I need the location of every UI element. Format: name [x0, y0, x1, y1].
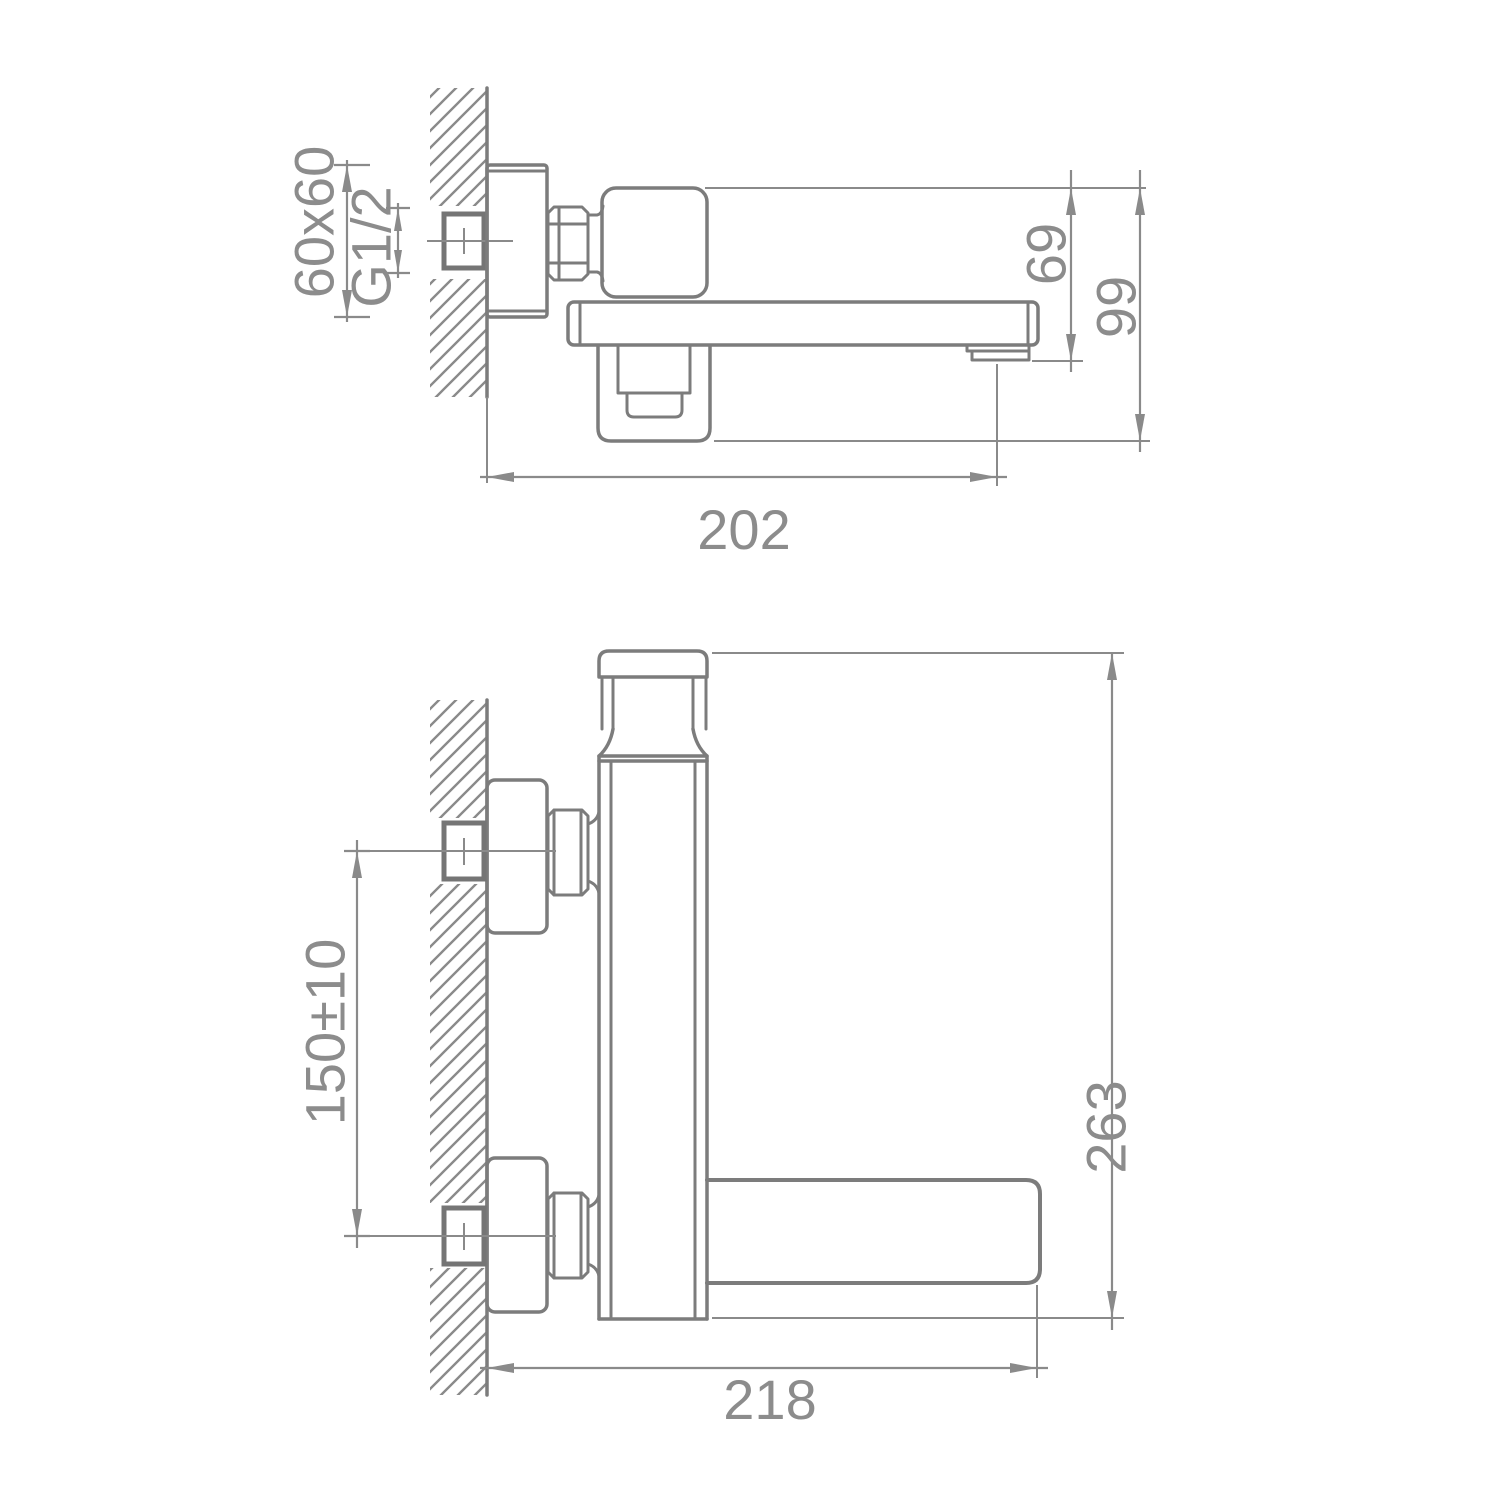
arrow-up-icon — [1066, 188, 1076, 215]
arrow-down-icon — [1135, 414, 1145, 441]
housing-step-1 — [618, 346, 690, 393]
front-view: 150±10 263 218 — [294, 651, 1138, 1431]
housing-step-2 — [627, 393, 682, 417]
arrow-left-icon — [487, 472, 514, 482]
dim-label-overall-depth: 99 — [1085, 276, 1148, 338]
aerator — [967, 345, 1029, 360]
arrow-right-icon — [1010, 1363, 1037, 1373]
dim-label-flange-size: 60x60 — [283, 146, 346, 299]
arrow-right-icon — [970, 472, 997, 482]
dim-overall-length: 218 — [480, 1285, 1048, 1431]
arrow-down-icon — [1066, 334, 1076, 361]
arrow-up-icon — [1135, 188, 1145, 215]
wall-hatch-1 — [430, 700, 487, 818]
wall-hatch-lower — [430, 279, 487, 397]
dim-overall-depth: 99 — [714, 170, 1150, 452]
wall-hatch-3 — [430, 1268, 487, 1395]
spout — [707, 1180, 1040, 1283]
arrow-down-icon — [1107, 1291, 1117, 1318]
arrow-left-icon — [487, 1363, 514, 1373]
dim-label-overall-height: 263 — [1075, 1080, 1138, 1173]
arrow-up-icon — [352, 851, 362, 878]
spout-bar — [568, 302, 1038, 345]
side-view: 60x60 G1/2 69 99 — [283, 88, 1151, 561]
dim-overall-height: 263 — [712, 653, 1138, 1330]
drawing-canvas: 60x60 G1/2 69 99 — [0, 0, 1500, 1500]
dim-mount-spacing: 150±10 — [294, 840, 371, 1248]
arrow-up-icon — [1107, 653, 1117, 680]
arrow-down-icon — [352, 1209, 362, 1236]
wall-hatch-upper — [430, 88, 487, 206]
dim-reach: 202 — [480, 364, 1007, 561]
wall-hatch-2 — [430, 884, 487, 1203]
faucet-dimension-drawing: 60x60 G1/2 69 99 — [0, 0, 1500, 1500]
dim-label-thread: G1/2 — [340, 186, 403, 307]
dim-thread: G1/2 — [340, 186, 411, 307]
dim-label-reach: 202 — [697, 498, 790, 561]
upper-flange — [487, 780, 547, 933]
dim-label-overall-length: 218 — [723, 1368, 816, 1431]
handle-cap — [599, 651, 707, 677]
dim-label-mount-spacing: 150±10 — [294, 939, 357, 1125]
connector-nut — [548, 207, 588, 280]
dim-label-spout-drop: 69 — [1015, 223, 1078, 285]
handle-skirt — [599, 729, 707, 761]
faucet-body — [602, 188, 707, 297]
dim-spout-drop: 69 — [1015, 170, 1084, 372]
